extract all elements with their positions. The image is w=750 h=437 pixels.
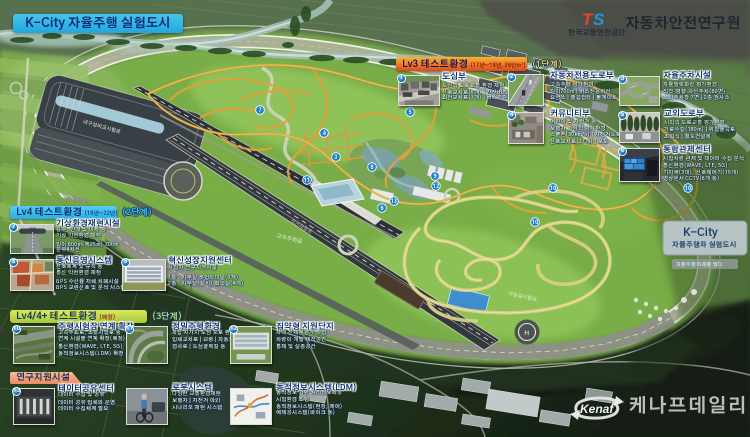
- svg-text:13: 13: [391, 199, 397, 205]
- svg-text:6: 6: [380, 206, 383, 212]
- svg-text:10: 10: [550, 186, 556, 192]
- svg-text:Kenaf: Kenaf: [580, 402, 614, 416]
- svg-text:10: 10: [532, 220, 538, 226]
- svg-text:자율주행차 실험도시: 자율주행차 실험도시: [672, 240, 736, 249]
- svg-text:K-City: K-City: [683, 227, 719, 239]
- svg-text:11: 11: [304, 178, 310, 184]
- svg-text:9: 9: [433, 174, 436, 180]
- svg-text:5: 5: [408, 110, 411, 116]
- svg-text:12: 12: [433, 184, 439, 190]
- svg-text:3: 3: [334, 155, 337, 161]
- svg-text:H: H: [525, 330, 530, 337]
- svg-text:자율주행 미래를 열다: 자율주행 미래를 열다: [676, 261, 722, 268]
- svg-text:7: 7: [258, 108, 261, 114]
- svg-text:10: 10: [685, 186, 691, 192]
